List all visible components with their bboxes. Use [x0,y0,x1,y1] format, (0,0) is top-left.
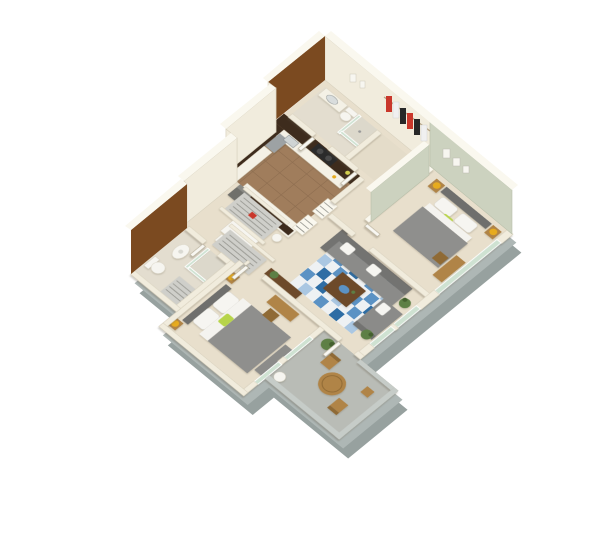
floorplan-render [0,0,600,545]
floorplan-stage [0,0,600,545]
